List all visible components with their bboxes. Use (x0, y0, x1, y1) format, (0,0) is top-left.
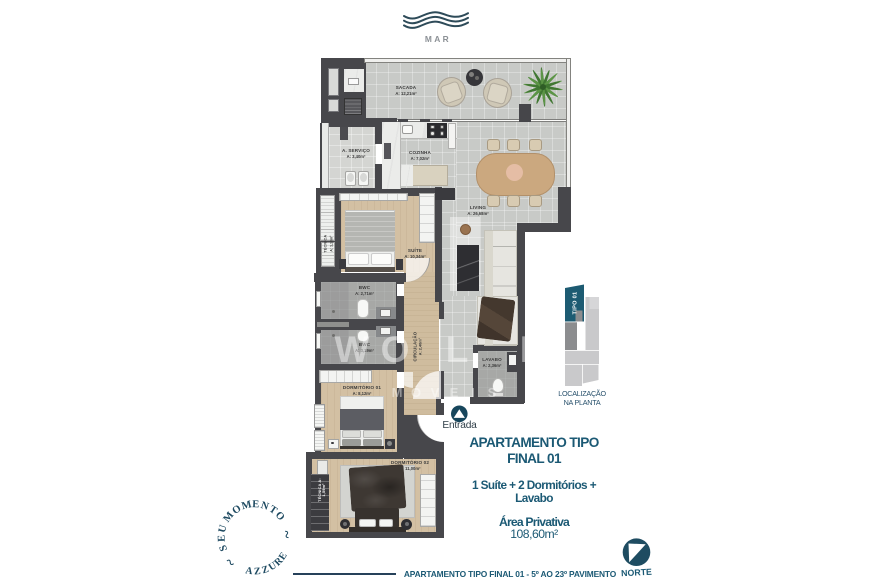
svg-text:S: S (218, 543, 230, 552)
svg-text:~: ~ (278, 530, 295, 539)
svg-text:E: E (216, 535, 227, 542)
svg-text:M: M (241, 499, 253, 512)
svg-text:E: E (252, 499, 259, 510)
svg-text:U: U (217, 523, 230, 534)
svg-text:TIPO 01: TIPO 01 (572, 292, 578, 315)
svg-text:~: ~ (222, 553, 239, 570)
svg-text:NORTE: NORTE (621, 567, 652, 579)
